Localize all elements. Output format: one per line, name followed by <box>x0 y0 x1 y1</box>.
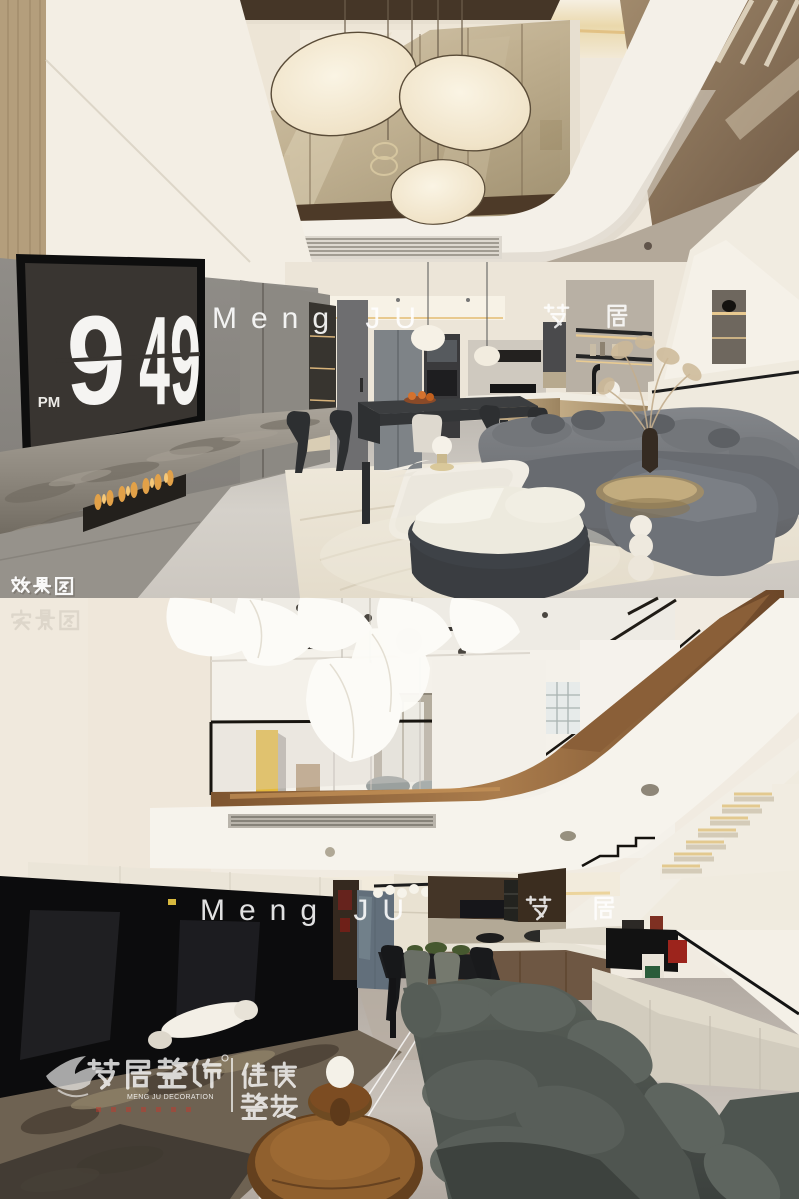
svg-text:Meng JU: Meng JU <box>200 894 418 927</box>
svg-text:Meng JU: Meng JU <box>212 302 430 335</box>
svg-text:49: 49 <box>139 290 201 431</box>
svg-text:MENG JU DECORATION: MENG JU DECORATION <box>127 1094 214 1101</box>
svg-text:PM: PM <box>38 394 61 411</box>
